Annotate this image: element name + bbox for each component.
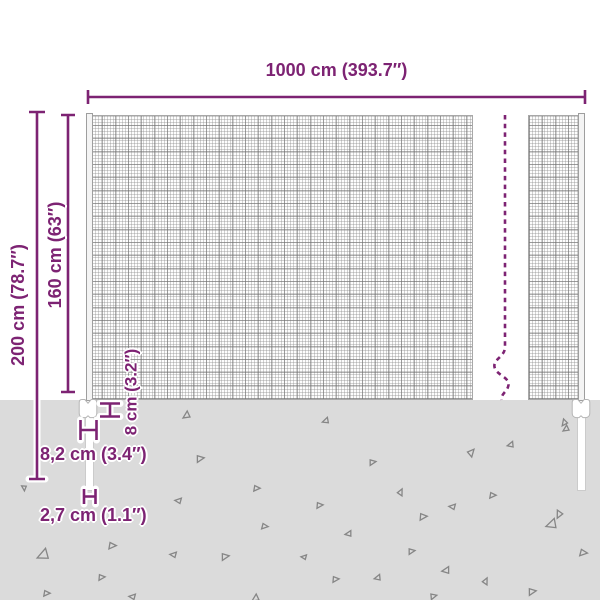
width-dimension-line [88,90,585,104]
fence-post-right [578,113,585,401]
clamp-width-dimension-label: 8,2 cm (3.4″) [40,445,147,463]
post-clamp-icon-left [78,398,98,419]
fence-mesh-left [88,115,473,400]
fence-post-left [86,113,93,401]
mesh-height-dimension-label: 160 cm (63″) [46,202,64,309]
total-height-dimension-label: 200 cm (78.7″) [9,244,27,366]
pole-diameter-dimension-label: 2,7 cm (1.1″) [40,506,147,524]
width-dimension-label: 1000 cm (393.7″) [88,61,585,79]
post-clamp-icon-right [571,398,591,419]
fence-mesh-right [528,115,585,400]
clamp-height-dimension-label: 8 cm (3.2″) [123,349,140,436]
fence-dimension-diagram: 1000 cm (393.7″) 200 cm (78.7″) 160 cm (… [0,0,600,600]
